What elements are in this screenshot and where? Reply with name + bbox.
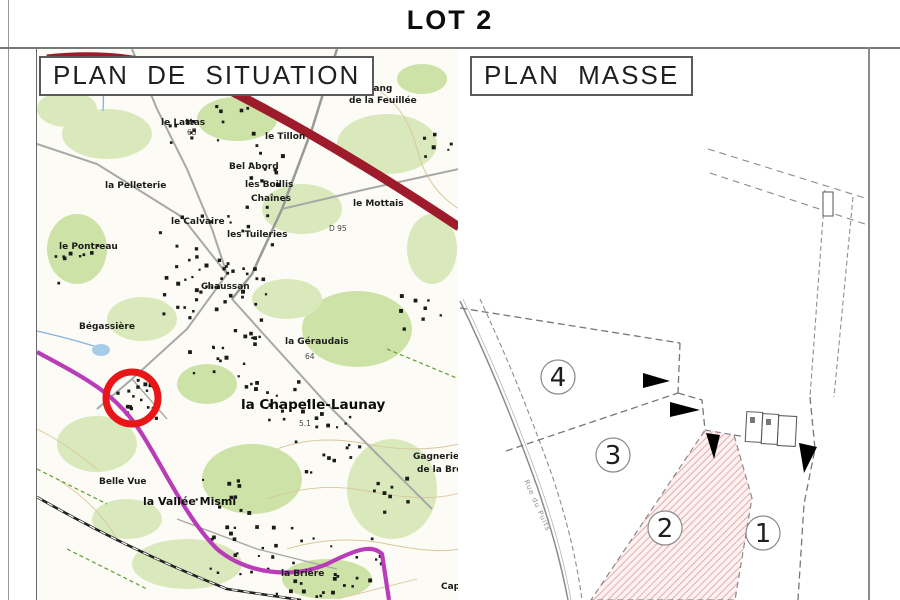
building-dot	[250, 571, 253, 574]
building-dot	[315, 426, 318, 429]
building-dot	[219, 110, 223, 114]
building-dot	[199, 269, 201, 271]
building-dot	[230, 221, 232, 223]
building-dot	[195, 298, 198, 301]
building-dot	[345, 423, 347, 425]
building-dot	[159, 231, 162, 234]
building-dot	[215, 308, 219, 312]
building-dot	[57, 282, 60, 285]
building-dot	[217, 357, 220, 360]
map-label: les Tuileries	[227, 230, 288, 240]
building-dot	[238, 484, 242, 488]
pond	[92, 344, 110, 356]
map-label: le Pontreau	[59, 242, 118, 252]
building-dot	[227, 215, 230, 218]
building-dot	[422, 318, 425, 321]
map-label: les Boillis	[245, 180, 293, 190]
building-dot	[218, 259, 221, 262]
building-dot	[205, 264, 209, 268]
building-dot	[225, 525, 229, 529]
building-dot	[247, 511, 251, 515]
building-dot	[243, 363, 245, 365]
building-dot	[322, 454, 325, 457]
building-dot	[349, 416, 351, 418]
street-left	[460, 299, 582, 600]
map-label-commune: la Chapelle-Launay	[241, 397, 386, 413]
building-dot	[405, 477, 409, 481]
building-dot	[293, 388, 296, 391]
building-dot	[315, 416, 319, 420]
building-dot	[333, 459, 337, 463]
building-dot	[229, 532, 233, 536]
building-dot	[195, 255, 198, 258]
building-dot	[242, 267, 245, 270]
building-dot	[217, 139, 219, 141]
masse-panel-label: PLAN MASSE	[470, 56, 693, 96]
building-dot	[423, 137, 426, 140]
building-dot	[127, 390, 130, 393]
building-dot	[240, 109, 244, 113]
building-dot	[368, 579, 372, 583]
map-label: de la Feuillée	[349, 95, 417, 106]
map-label: Gagnerie	[413, 452, 459, 462]
building-dot	[373, 490, 376, 493]
map-label: 64	[305, 352, 315, 361]
building-dot	[300, 582, 303, 585]
building-dot	[252, 132, 256, 136]
building-dot	[147, 406, 150, 409]
building-dot	[327, 456, 331, 460]
building-dot	[326, 424, 330, 428]
map-label: Bégassière	[79, 321, 135, 332]
building-dot	[170, 141, 173, 144]
lane-post	[823, 192, 833, 216]
building-dot	[406, 500, 409, 503]
building-dot	[331, 591, 335, 595]
building-dot	[254, 303, 257, 306]
building-dot	[246, 107, 249, 110]
building-dot	[276, 593, 278, 595]
building-dot	[243, 335, 247, 339]
building-dot	[165, 276, 169, 280]
lot-4-number: 4	[550, 363, 567, 393]
building-dot	[126, 406, 129, 409]
building-dot	[349, 456, 352, 459]
building-dot	[225, 265, 228, 268]
building-dot	[262, 278, 266, 282]
building-dot	[227, 482, 231, 486]
building-dot	[337, 575, 340, 578]
map-label: D 95	[329, 224, 347, 233]
map-label: la Vallée Mismi	[143, 495, 236, 508]
building-dot	[55, 255, 58, 258]
building-dot	[234, 329, 237, 332]
building-dot	[262, 547, 264, 549]
building-dot	[356, 577, 359, 580]
map-label: le Mottais	[353, 199, 404, 209]
building-dot	[272, 526, 276, 530]
map-label: la Géraudais	[285, 336, 349, 347]
building-dot	[447, 149, 449, 151]
building-dot	[343, 584, 346, 587]
building-dot	[234, 527, 236, 529]
map-label: le Calvaire	[171, 217, 225, 227]
building-dot	[315, 595, 318, 598]
building-dot	[305, 470, 308, 473]
building-dot	[388, 495, 392, 499]
building-dot	[256, 277, 259, 280]
building-dot	[234, 553, 238, 557]
building-dot	[266, 391, 269, 394]
building-dot	[175, 265, 178, 268]
building-dot	[176, 282, 180, 286]
situation-panel: PLAN DE SITUATION	[36, 49, 460, 600]
document-page: LOT 2 PLAN DE SITUATION	[0, 0, 900, 600]
building-dot	[268, 419, 271, 422]
building-dot	[400, 294, 404, 298]
building-dot	[231, 270, 234, 273]
building-dot	[432, 145, 436, 149]
building-dot	[195, 288, 199, 292]
page-border-right	[868, 47, 870, 600]
building-dot	[155, 417, 158, 420]
map-label: 5.1	[299, 419, 311, 428]
building-dot	[274, 544, 278, 548]
building-dot	[143, 382, 147, 386]
building-dot	[220, 277, 223, 280]
building-dot	[253, 342, 257, 346]
building-dot	[62, 255, 65, 258]
building-dot	[358, 445, 361, 448]
map-label: le Tillon	[265, 132, 305, 142]
situation-map: étang de la Feuillée le Lattas le Tillon…	[37, 49, 459, 600]
building-dot	[229, 294, 233, 298]
building-dot	[219, 360, 222, 363]
building-dot	[69, 252, 73, 256]
building-dot	[137, 379, 140, 382]
building-dot	[213, 370, 216, 373]
building-dot	[188, 350, 192, 354]
building-dot	[163, 293, 166, 296]
building-dot	[188, 259, 191, 262]
building-dot	[251, 337, 253, 339]
building-dot	[293, 579, 297, 583]
building-dot	[79, 255, 81, 257]
building-dot	[240, 509, 243, 512]
page-title: LOT 2	[0, 5, 900, 36]
building-dot	[281, 154, 285, 158]
building-dot	[356, 556, 359, 559]
building-dot	[383, 511, 386, 514]
building-dot	[302, 590, 306, 594]
building-dot	[238, 375, 240, 377]
map-label: 65	[187, 128, 197, 137]
building-dot	[450, 143, 453, 146]
building-dot	[247, 225, 250, 228]
building-dot	[348, 444, 350, 446]
building-dot	[265, 293, 267, 295]
building-dot	[266, 214, 269, 217]
building-dot	[399, 309, 403, 313]
access-arrow-lot1	[799, 443, 817, 473]
building-dot	[414, 299, 418, 303]
building-dot	[254, 387, 258, 391]
access-arrow-lot3	[670, 402, 700, 417]
building-dot	[233, 537, 237, 541]
building-dot	[440, 314, 442, 316]
page-border-left	[8, 0, 9, 600]
building-dot	[346, 446, 349, 449]
building-dot	[377, 482, 380, 485]
building-dot	[424, 155, 427, 158]
building-dot	[237, 479, 240, 482]
building-dot	[184, 279, 186, 281]
building-dot	[330, 545, 332, 547]
building-dot	[215, 105, 218, 108]
map-label: de la Bro	[417, 465, 459, 475]
building-dot	[283, 418, 286, 421]
building-dot	[258, 336, 260, 338]
building-dot	[249, 332, 253, 336]
building-dot	[116, 392, 119, 395]
map-label: Belle Vue	[99, 477, 147, 487]
building-dot	[433, 133, 437, 137]
building-dot	[191, 276, 193, 278]
map-label: la Pelleterie	[105, 181, 166, 191]
building-dot	[225, 356, 229, 360]
building-dot	[217, 572, 220, 575]
building-dot	[212, 536, 216, 540]
building-dot	[403, 327, 406, 330]
building-dot	[272, 555, 274, 557]
map-label: le Lattas	[161, 118, 205, 128]
building-dot	[313, 537, 315, 539]
access-arrow-lot4	[643, 373, 670, 388]
building-dot	[292, 562, 295, 565]
building-dot	[140, 399, 143, 402]
building-dot	[227, 262, 230, 265]
building-dot	[271, 243, 274, 246]
building-dot	[176, 245, 179, 248]
building-dot	[320, 595, 323, 598]
building-dot	[246, 206, 249, 209]
building-dot	[146, 390, 148, 392]
building-dot	[162, 312, 165, 315]
building-dot	[253, 336, 257, 340]
building-dot	[258, 555, 260, 557]
building-dot	[295, 441, 298, 444]
map-label: Capr	[441, 582, 459, 592]
building-dot	[255, 381, 259, 385]
building-dot	[192, 310, 195, 313]
building-dot	[427, 299, 429, 301]
building-dot	[188, 316, 191, 319]
building-dot	[351, 585, 354, 588]
building-dot	[210, 568, 212, 570]
lot-1-number: 1	[755, 519, 772, 549]
building-dot	[223, 300, 226, 303]
lot-2-number: 2	[657, 514, 674, 544]
building-dot	[334, 573, 337, 576]
building-dot	[132, 395, 135, 398]
access-lane	[810, 190, 853, 397]
lot-3-number: 3	[605, 441, 622, 471]
building-dot	[291, 527, 294, 530]
building-dot	[195, 247, 198, 250]
building-dot	[424, 307, 428, 311]
building-dot	[245, 385, 249, 389]
building-dot	[202, 479, 204, 481]
masse-plan: Rue du Puits	[458, 49, 868, 600]
building-dot	[226, 272, 229, 275]
building-dot	[322, 591, 325, 594]
building-dot	[193, 372, 195, 374]
building-dot	[391, 486, 394, 489]
building-dot	[336, 426, 338, 428]
building-dot	[259, 152, 262, 155]
building-dot	[136, 385, 139, 388]
building-dot	[239, 573, 241, 575]
building-dot	[333, 577, 337, 581]
building-dot	[246, 273, 249, 276]
building-dot	[176, 306, 179, 309]
building-dot	[222, 121, 225, 124]
building-dot	[371, 538, 374, 541]
building-dot	[253, 267, 257, 271]
building-dot	[128, 405, 132, 409]
building-dot	[383, 491, 387, 495]
map-label: Chaînes	[251, 194, 291, 204]
map-label: Bel Abord	[229, 162, 279, 172]
building-dot	[289, 589, 293, 593]
building-dot	[266, 206, 269, 209]
building-dot	[212, 346, 215, 349]
building-dot	[300, 540, 303, 543]
building-dot	[83, 253, 86, 256]
situation-panel-label: PLAN DE SITUATION	[39, 56, 374, 96]
building-dot	[375, 558, 377, 560]
masse-panel: PLAN MASSE Rue du Puits	[458, 49, 868, 600]
building-dot	[222, 347, 224, 349]
building-dot	[310, 471, 312, 473]
building-dot	[297, 380, 301, 384]
building-dot	[241, 296, 244, 299]
road-top-right	[708, 149, 868, 225]
map-label: la Brière	[281, 568, 324, 579]
building-dot	[256, 144, 259, 147]
building-dot	[255, 525, 259, 529]
garage-row	[745, 412, 797, 447]
building-dot	[260, 318, 263, 321]
building-dot	[250, 383, 253, 386]
building-dot	[183, 306, 186, 309]
map-label: Chaussan	[201, 282, 250, 292]
